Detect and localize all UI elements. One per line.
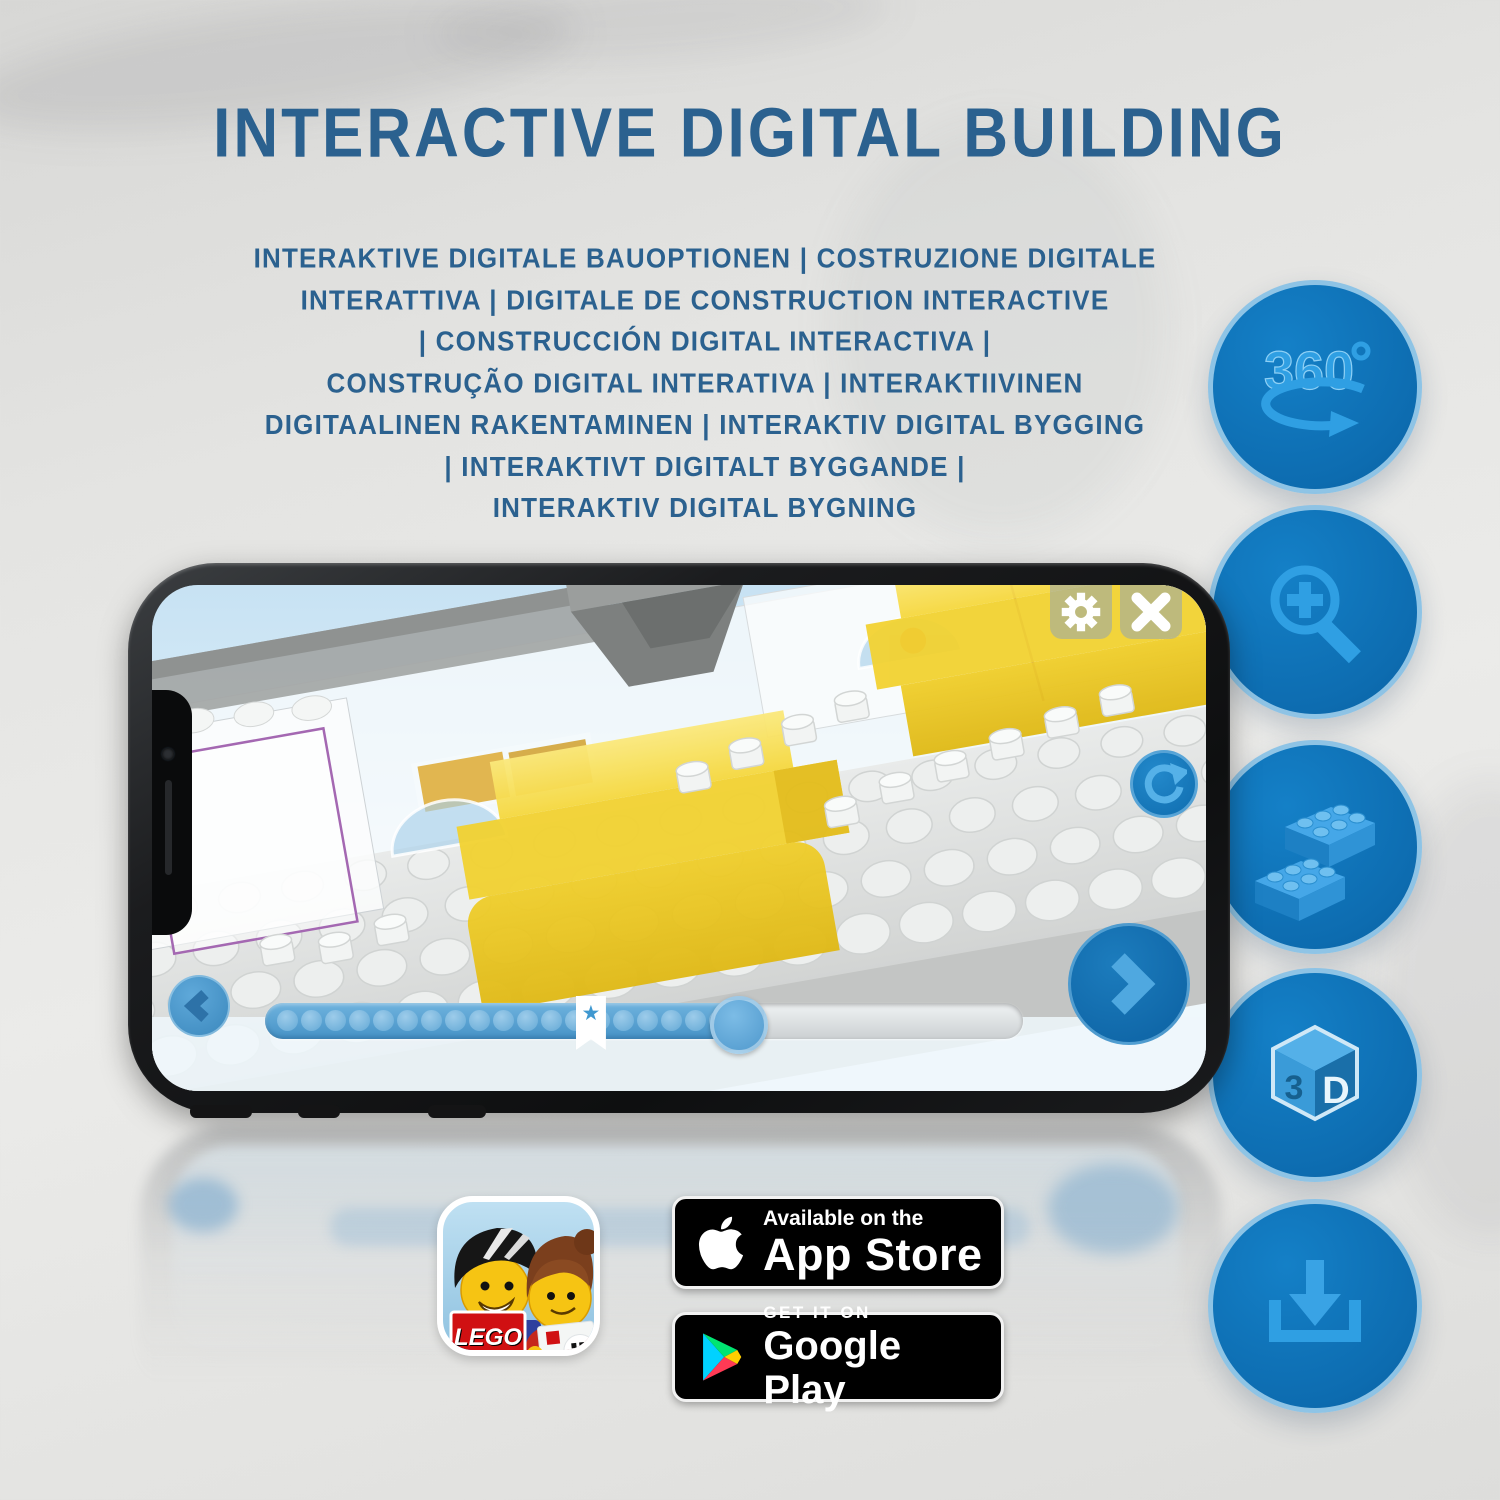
chevron-left-icon: [181, 988, 217, 1024]
page-title: INTERACTIVE DIGITAL BUILDING: [0, 94, 1500, 174]
progress-dot: [349, 1010, 370, 1031]
slider-handle[interactable]: [710, 996, 768, 1054]
phone-notch: [152, 690, 192, 935]
lego-app-icon-art: LEGO: [443, 1202, 594, 1350]
feature-download: [1208, 1199, 1422, 1413]
close-button[interactable]: [1120, 585, 1182, 639]
phone-side-button: [298, 1105, 340, 1118]
smartphone: ★: [128, 563, 1230, 1113]
progress-dot: [517, 1010, 538, 1031]
google-play-label: Google Play: [763, 1324, 987, 1412]
progress-dot: [637, 1010, 658, 1031]
360-rotation-icon: 360: [1240, 312, 1390, 462]
progress-dot: [325, 1010, 346, 1031]
svg-text:D: D: [1322, 1070, 1349, 1112]
svg-text:3: 3: [1285, 1069, 1304, 1107]
subtitle-line: | INTERAKTIVT DIGITALT BYGGANDE |: [160, 445, 1250, 487]
3d-view-icon: 3 D: [1240, 1000, 1390, 1150]
google-play-icon: [695, 1328, 745, 1386]
google-play-tagline: GET IT ON: [763, 1302, 987, 1324]
settings-button[interactable]: [1050, 585, 1112, 639]
close-icon: [1130, 591, 1172, 633]
progress-dot: [541, 1010, 562, 1031]
previous-step-button[interactable]: [168, 975, 230, 1037]
subtitle-line: INTERAKTIVE DIGITALE BAUOPTIONEN | COSTR…: [160, 237, 1250, 279]
subtitle-multilingual: INTERAKTIVE DIGITALE BAUOPTIONEN | COSTR…: [160, 237, 1250, 528]
build-progress-slider[interactable]: ★: [265, 1003, 1023, 1039]
zoom-in-icon: [1245, 542, 1385, 682]
progress-dot: [277, 1010, 298, 1031]
rotate-view-button[interactable]: [1130, 750, 1198, 818]
button-reflection: [168, 1178, 238, 1232]
progress-dot: [445, 1010, 466, 1031]
subtitle-line: DIGITAALINEN RAKENTAMINEN | INTERAKTIV D…: [160, 404, 1250, 446]
subtitle-line: INTERATTIVA | DIGITALE DE CONSTRUCTION I…: [160, 279, 1250, 321]
progress-dot: [685, 1010, 706, 1031]
progress-dot: [301, 1010, 322, 1031]
progress-dot: [613, 1010, 634, 1031]
feature-zoom-in: [1208, 505, 1422, 719]
feature-3d-view: 3 D: [1208, 968, 1422, 1182]
lego-app-icon[interactable]: LEGO: [437, 1196, 600, 1356]
progress-dot: [397, 1010, 418, 1031]
download-instructions-icon: [1240, 1231, 1390, 1381]
button-reflection: [1048, 1164, 1178, 1254]
app-store-badge[interactable]: Available on the App Store: [672, 1196, 1004, 1289]
phone-screen: ★: [152, 585, 1206, 1091]
svg-text:LEGO: LEGO: [454, 1324, 522, 1350]
phone-side-button: [190, 1105, 252, 1118]
app-store-tagline: Available on the: [763, 1207, 983, 1231]
brick-stacking-icon: [1240, 772, 1390, 922]
feature-360-rotation: 360: [1208, 280, 1422, 494]
subtitle-line: CONSTRUÇÃO DIGITAL INTERATIVA | INTERAKT…: [160, 362, 1250, 404]
background-shadow: [428, 0, 892, 76]
feature-brick-stacking: [1208, 740, 1422, 954]
progress-dot: [493, 1010, 514, 1031]
chevron-right-icon: [1094, 949, 1164, 1019]
gear-icon: [1059, 590, 1103, 634]
app-store-label: App Store: [763, 1231, 983, 1279]
rotate-reset-icon: [1141, 761, 1187, 807]
google-play-badge[interactable]: GET IT ON Google Play: [672, 1312, 1004, 1402]
phone-side-button: [428, 1105, 486, 1118]
subtitle-line: | CONSTRUCCIÓN DIGITAL INTERACTIVA |: [160, 320, 1250, 362]
apple-icon: [697, 1213, 745, 1273]
speaker-slot: [165, 780, 172, 875]
subtitle-line: INTERAKTIV DIGITAL BYGNING: [160, 487, 1250, 529]
next-step-button[interactable]: [1068, 923, 1190, 1045]
progress-dot: [469, 1010, 490, 1031]
camera-icon: [162, 748, 174, 760]
progress-dot: [373, 1010, 394, 1031]
progress-dot: [421, 1010, 442, 1031]
progress-dot: [661, 1010, 682, 1031]
